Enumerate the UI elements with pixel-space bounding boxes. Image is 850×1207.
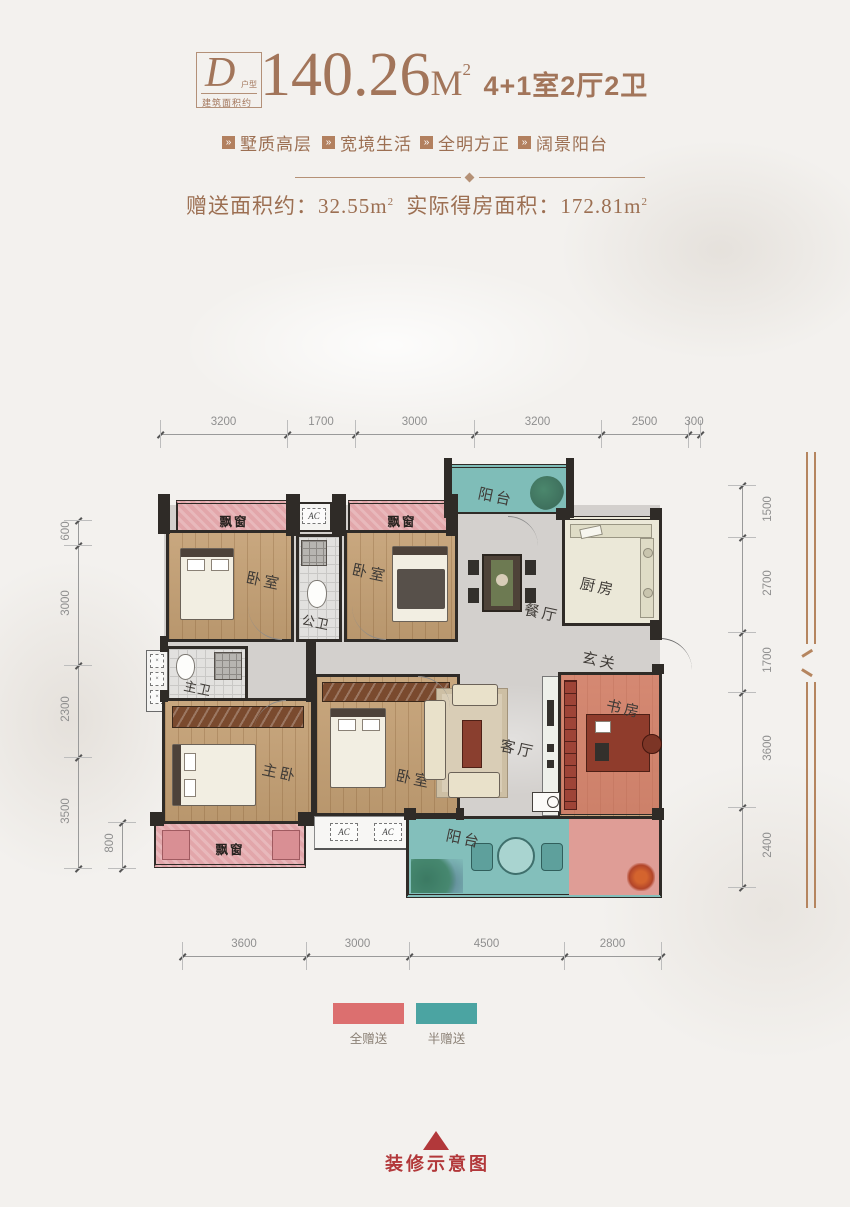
dim-right-ext [728,887,756,888]
dim-bottom-label: 3000 [328,938,388,950]
dim-bottom-ext [661,942,662,970]
plant [530,476,564,510]
patio-chair [541,843,563,871]
dining-chair [468,560,479,575]
desk [586,714,650,772]
dim-top-label: 3200 [194,416,254,428]
dim-top-label: 1700 [291,416,351,428]
edge-decor-line [806,682,808,908]
dim-left-ext [64,757,92,758]
stove-burner [643,548,653,558]
bay-window-label: 飘窗 [350,511,454,530]
bed [392,546,448,622]
dim-top-line [160,434,700,435]
dim-top-ext [474,420,475,448]
footer-caption: 装修示意图 [385,1150,490,1176]
dim-right-label: 1500 [762,479,774,539]
dim-bottom-ext [306,942,307,970]
cabinet-item [547,744,554,752]
bed [180,548,234,620]
flower-pot [627,863,655,891]
wall-block [298,812,314,826]
dim-top-label: 3200 [508,416,568,428]
edge-decor-line [806,452,808,644]
dim-left-ext [64,868,92,869]
cushion [272,830,300,860]
tv [547,700,554,726]
dim-bottom-line [182,956,661,957]
dim-right-line [742,485,743,887]
dim-left-label: 3000 [60,573,72,633]
balcony-bottom [406,816,662,898]
ac-position-mark: AC [374,823,402,841]
wall-block [332,494,346,536]
desk-chair [642,734,662,754]
bay-window-top-left: 飘窗 [176,500,292,532]
dim-bottom-label: 3600 [214,938,274,950]
coffee-table [462,720,482,768]
wall-block [444,458,452,518]
ac-position-mark: × [150,654,164,668]
dim-left-label: 3500 [60,781,72,841]
ac-position-mark: AC [330,823,358,841]
sofa [448,772,500,798]
legend: 全赠送 半赠送 [330,1000,550,1046]
wall-block [650,508,662,520]
legend-label-half-gift: 半赠送 [416,1028,477,1047]
legend-swatch-half-gift [416,1003,477,1024]
dining-chair [525,560,536,575]
dim-right-ext [728,807,756,808]
dim-bottom-ext [564,942,565,970]
edge-decor-line [814,682,816,908]
dim-right-label: 1700 [762,630,774,690]
sofa [424,700,446,780]
cushion [162,830,190,860]
dim-top-ext [601,420,602,448]
dim-top-ext [287,420,288,448]
dim-right-ext [728,485,756,486]
dining-table [482,554,522,612]
plant [411,859,463,893]
shower [301,540,327,566]
dim-right-ext [728,537,756,538]
sofa [452,684,498,706]
dim-top-label: 3000 [385,416,445,428]
toilet [307,580,327,608]
wall-block [404,808,416,820]
wall-block [652,808,664,820]
wall-block [456,808,464,820]
ac-position-mark: AC [302,508,326,524]
dim-bottom-label: 4500 [457,938,517,950]
dim-bottom-label: 2800 [583,938,643,950]
carousel-prev-icon[interactable] [800,654,816,672]
bed [172,744,256,806]
wall-block [652,664,664,674]
entry-door-arc [660,638,692,670]
stove-burner [643,588,653,598]
footer-triangle-icon [423,1131,449,1150]
dim-bottom-ext [182,942,183,970]
bay-window-top-right: 飘窗 [348,500,456,532]
bed [330,708,386,788]
wall-block [158,494,170,534]
dim-left-label: 2300 [60,679,72,739]
wall-block [306,640,316,702]
wall-block [650,620,662,640]
bay-window-label: 飘窗 [178,511,290,530]
dim-right-label: 3600 [762,718,774,778]
patio-table [497,837,535,875]
bookshelf [564,680,577,810]
bay-window-bottom: 飘窗 [154,822,306,868]
dim-bottom-ext [409,942,410,970]
ac-unit [532,792,560,812]
shower [214,652,242,680]
dim-left-inner-label: 800 [104,813,116,873]
dim-left-ext [64,665,92,666]
dim-top-ext [355,420,356,448]
wall-block [286,494,300,536]
ac-position-mark: × [150,672,164,686]
dining-chair [468,588,479,603]
dim-left-inner-line [122,822,123,868]
dim-top-label: 300 [664,416,724,428]
legend-swatch-full-gift [333,1003,404,1024]
cabinet-item [547,760,554,768]
edge-decor-line [814,452,816,644]
dim-top-ext [160,420,161,448]
dim-left-label: 600 [60,501,72,561]
dim-right-ext [728,632,756,633]
dim-right-label: 2700 [762,553,774,613]
dim-right-label: 2400 [762,815,774,875]
dim-left-line [78,520,79,868]
dim-right-ext [728,692,756,693]
wall-block [160,690,168,702]
legend-label-full-gift: 全赠送 [333,1028,404,1047]
wall-block [150,812,164,826]
wall-block [160,636,168,652]
wall-block [556,508,570,520]
